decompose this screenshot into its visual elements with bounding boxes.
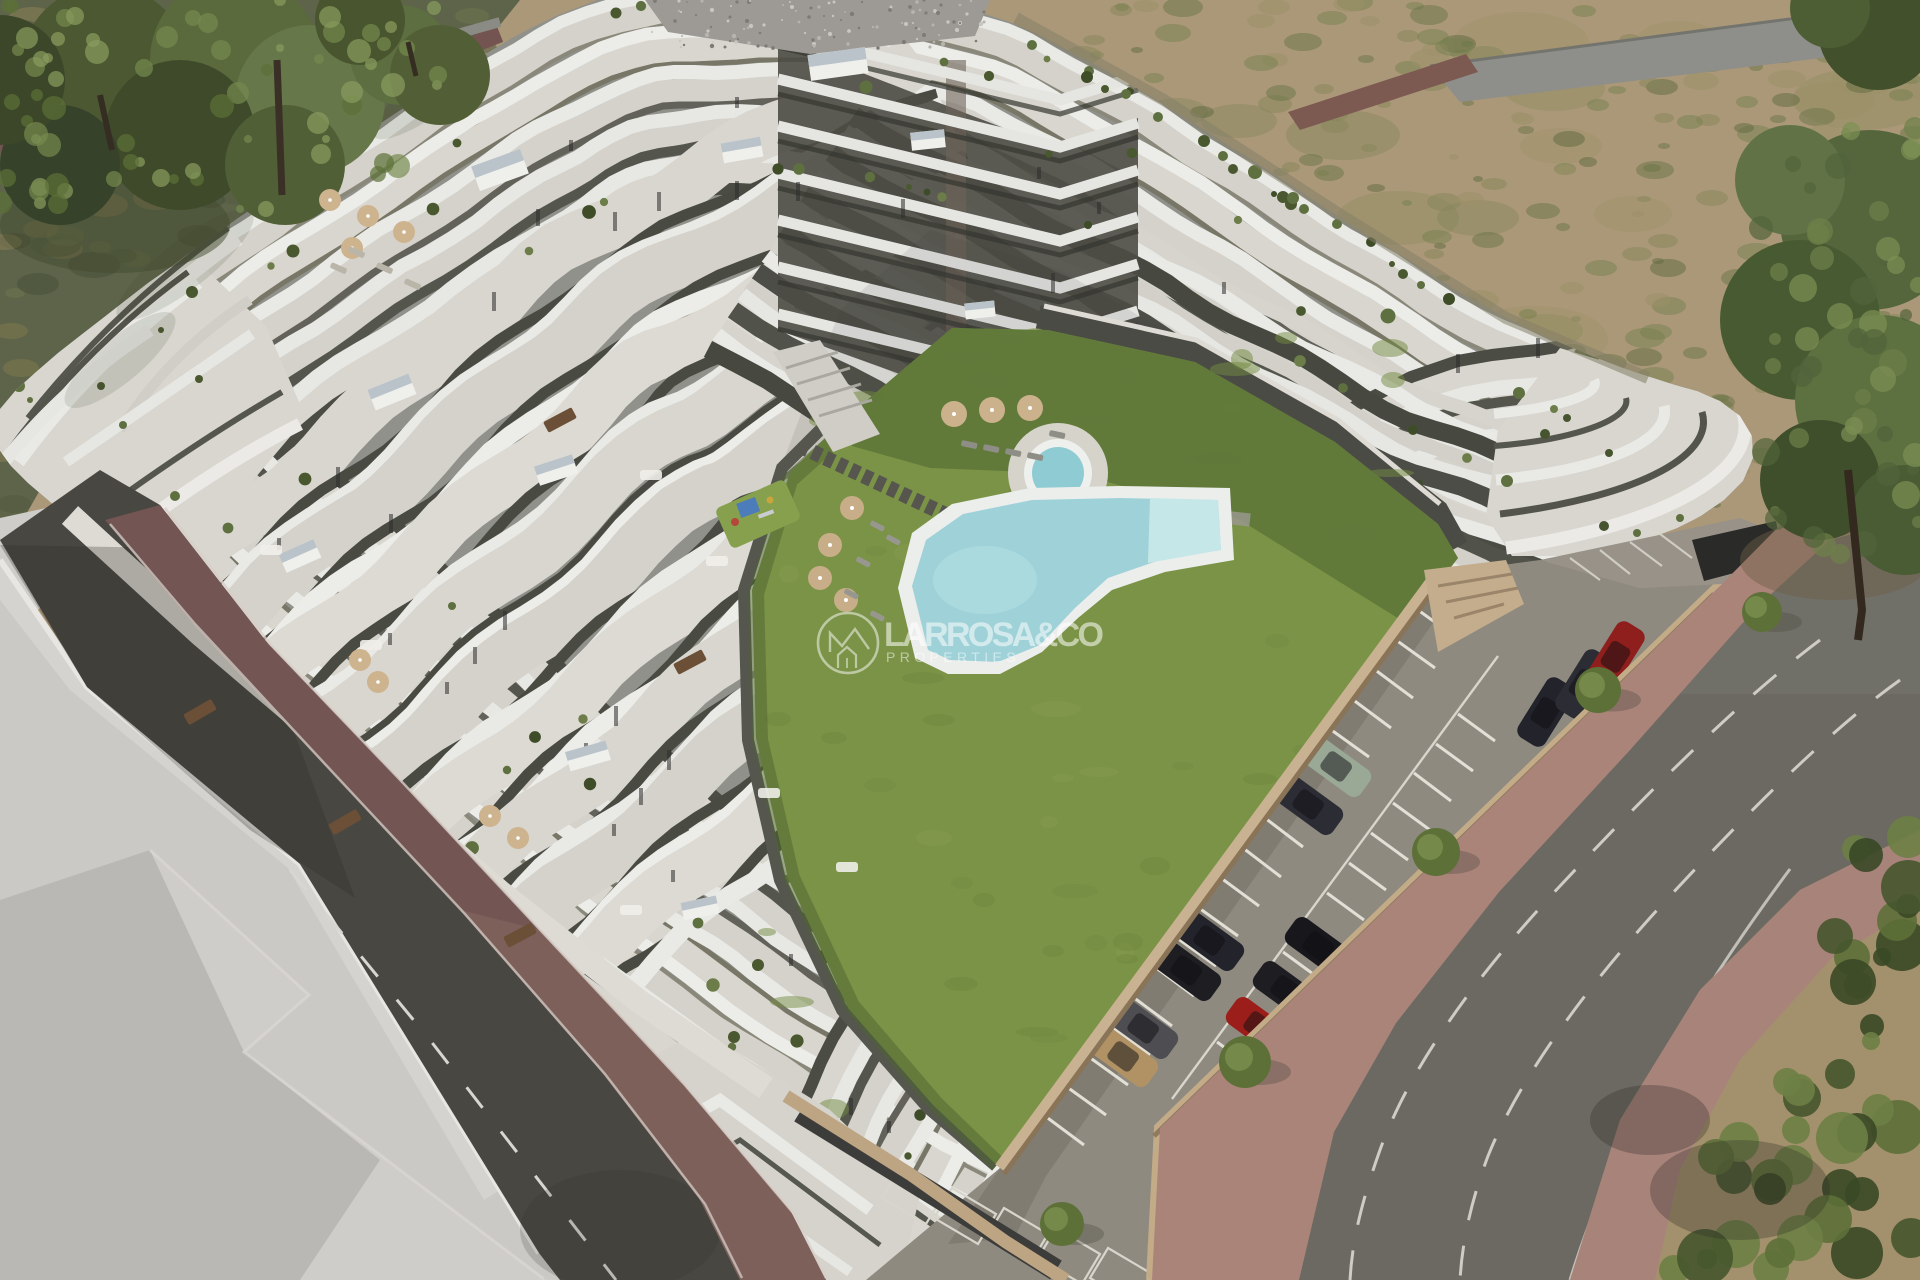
svg-text:PROPERTIES: PROPERTIES (886, 649, 1020, 665)
